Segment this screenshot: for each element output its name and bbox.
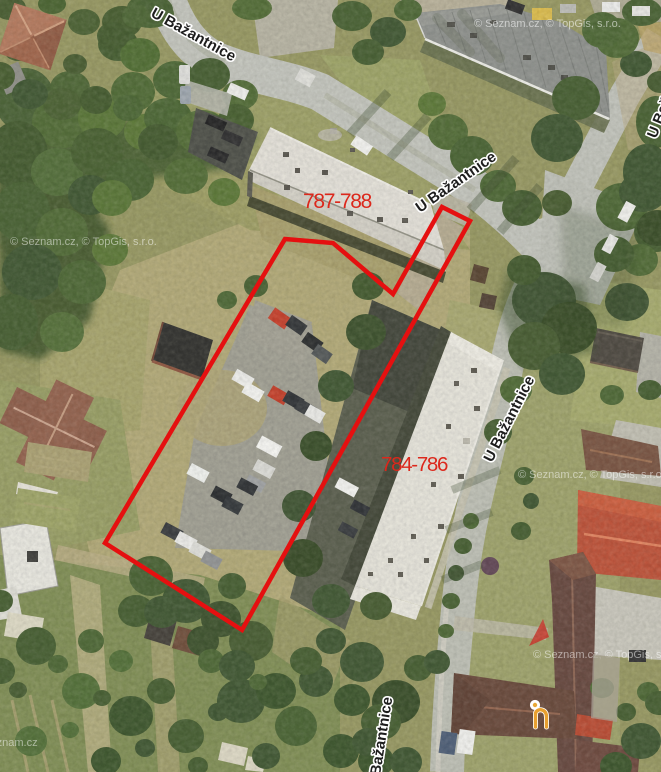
svg-text:784-786: 784-786 [381, 453, 448, 476]
svg-text:© Seznam.cz, © TopGis, s.r.o.: © Seznam.cz, © TopGis, s.r.o. [10, 236, 157, 248]
svg-text:© Seznam.cz: © Seznam.cz [0, 737, 38, 749]
svg-text:© Seznam.cz, © TopGis, s.r.o.: © Seznam.cz, © TopGis, s.r.o. [474, 18, 621, 30]
svg-text:787-788: 787-788 [303, 190, 372, 213]
svg-text:© Seznam.cz, © TopGis, s.r.o.: © Seznam.cz, © TopGis, s.r.o. [518, 469, 661, 481]
